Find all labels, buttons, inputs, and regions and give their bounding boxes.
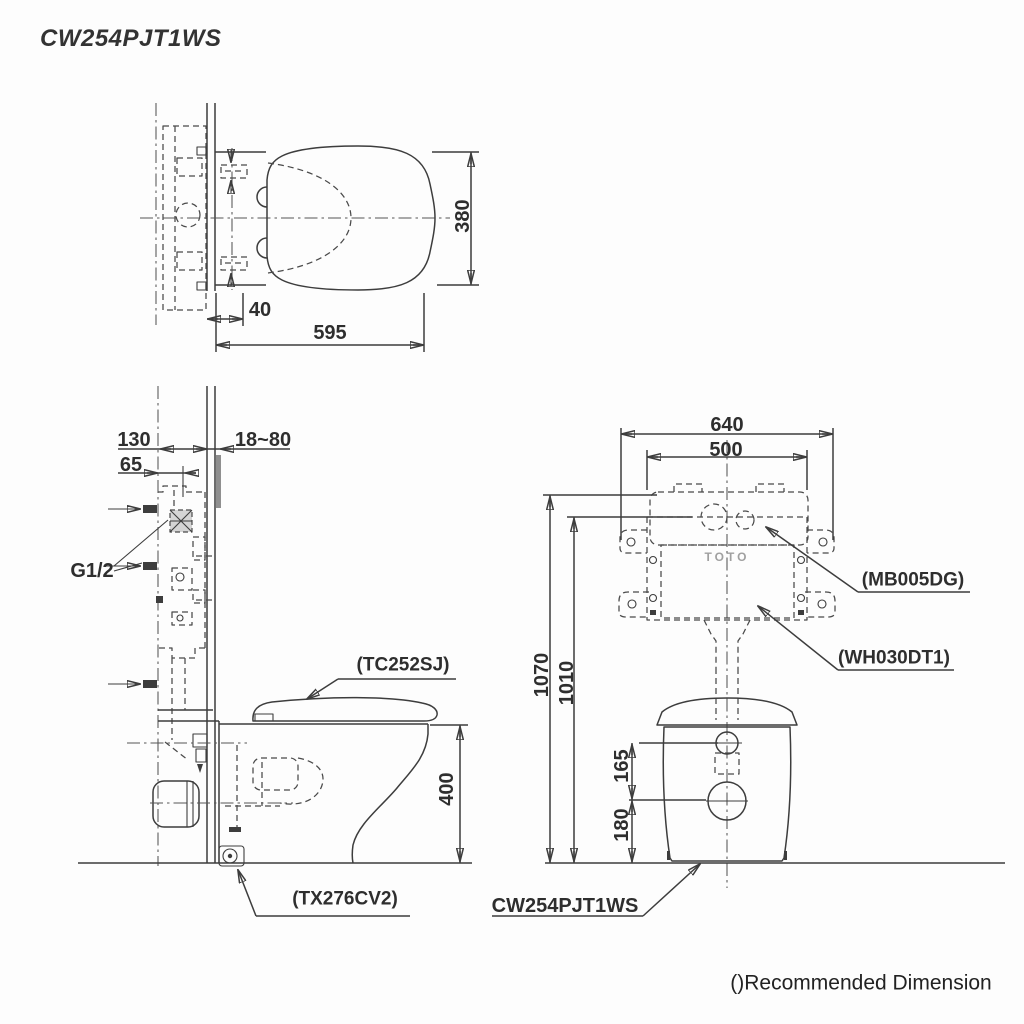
dim-height-plate: 1070 xyxy=(532,653,552,698)
dim-bowl-height: 400 xyxy=(437,772,457,805)
wall-section-plan xyxy=(207,103,215,291)
dim-tank-width: 500 xyxy=(709,440,742,460)
label-seat-model: (TC252SJ) xyxy=(357,656,450,675)
seat-hinge-bumps xyxy=(257,187,267,258)
flush-button-large xyxy=(701,504,727,530)
supply-valve xyxy=(153,781,199,827)
dim-165-180-lines xyxy=(629,743,718,863)
drawing-title: CW254PJT1WS xyxy=(40,27,222,51)
installation-spec-sheet: CW254PJT1WS 380 40 595 130 65 18~80 G1/2… xyxy=(0,0,1024,1024)
trapway-dashed xyxy=(225,745,323,832)
dim-seat-offset: 40 xyxy=(249,300,271,320)
label-outlet-fitting-model: (TX276CV2) xyxy=(292,890,398,909)
inlet-spud xyxy=(193,734,207,773)
label-bowl-model: CW254PJT1WS xyxy=(492,896,639,916)
wall-anchor-bolts xyxy=(105,505,157,688)
dim-frame-width: 640 xyxy=(710,415,743,435)
dim-seat-depth: 380 xyxy=(453,199,473,232)
flush-button-small xyxy=(736,511,754,529)
seat-lid-profile xyxy=(253,698,437,721)
g12-leader-lines xyxy=(114,520,168,571)
dim-inlet-offset: 65 xyxy=(120,455,142,475)
top-view xyxy=(140,103,479,352)
dimension-drawing-canvas xyxy=(0,0,1024,1024)
dim-wall-thickness: 18~80 xyxy=(235,430,291,450)
concealed-tank-plan xyxy=(156,103,206,325)
label-inlet-thread: G1/2 xyxy=(70,561,113,581)
inwall-frame-side xyxy=(156,466,212,760)
dim-height-tank: 1010 xyxy=(557,661,577,706)
dim-seat-width: 595 xyxy=(313,323,346,343)
toto-logo-text: TOTO xyxy=(705,551,750,563)
recommended-dimension-note: ()Recommended Dimension xyxy=(730,973,991,994)
dim-40-lines xyxy=(207,293,243,326)
dim-frame-depth: 130 xyxy=(117,430,150,450)
dim-hole-lower: 180 xyxy=(612,808,632,841)
label-flush-plate-model: (MB005DG) xyxy=(862,571,964,590)
dim-hole-upper: 165 xyxy=(612,749,632,782)
bowl-profile xyxy=(219,721,428,863)
label-concealed-tank-model: (WH030DT1) xyxy=(838,649,950,668)
